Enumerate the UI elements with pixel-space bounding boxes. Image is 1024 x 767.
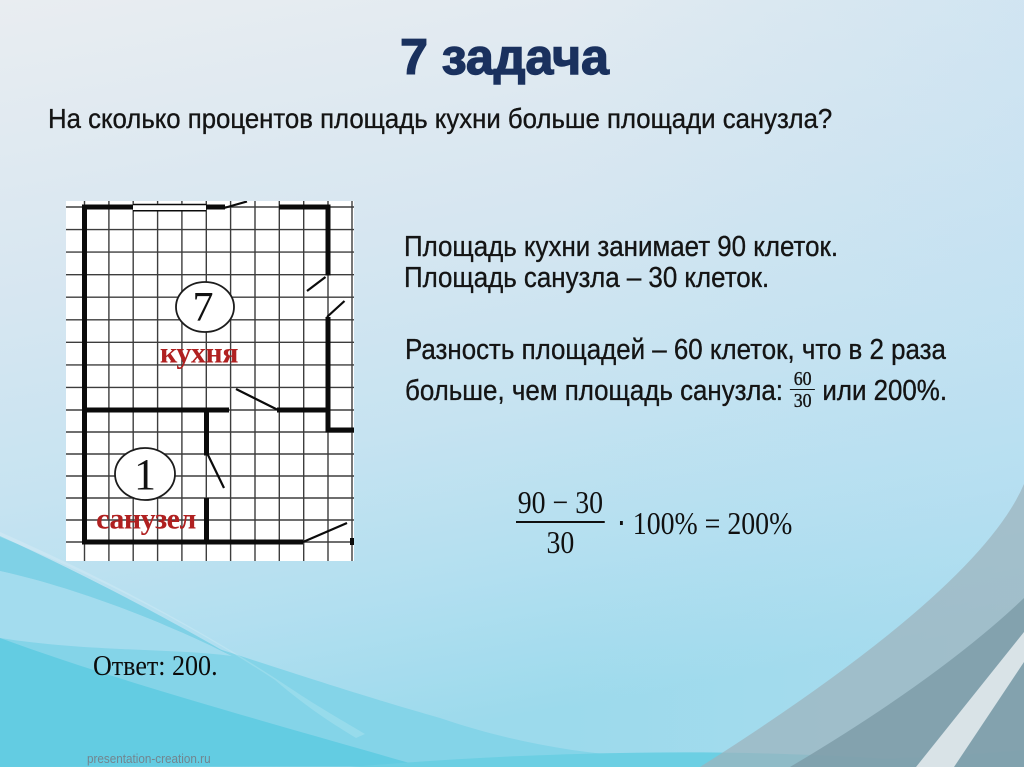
svg-text:санузел: санузел bbox=[96, 503, 196, 536]
svg-text:1: 1 bbox=[134, 450, 156, 499]
svg-text:7: 7 bbox=[193, 285, 214, 331]
svg-text:кухня: кухня bbox=[160, 337, 238, 370]
